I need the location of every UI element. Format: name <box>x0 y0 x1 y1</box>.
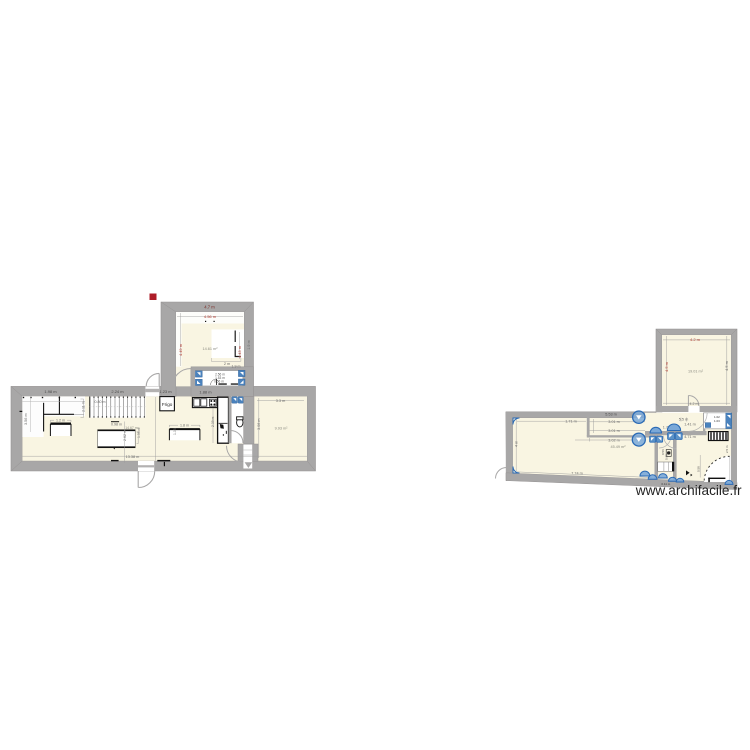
svg-text:4.71 m: 4.71 m <box>684 435 696 439</box>
svg-text:3.06 m: 3.06 m <box>257 418 261 430</box>
svg-text:3.01 m: 3.01 m <box>608 429 620 433</box>
svg-text:45.49 m²: 45.49 m² <box>611 445 627 449</box>
svg-text:1.03: 1.03 <box>714 419 720 423</box>
svg-text:0.98 m: 0.98 m <box>111 422 122 426</box>
svg-text:5.5 m: 5.5 m <box>679 418 689 422</box>
svg-text:19.01 m²: 19.01 m² <box>688 370 704 374</box>
svg-text:2.39 m: 2.39 m <box>211 416 215 427</box>
svg-text:3.01 m: 3.01 m <box>608 420 620 424</box>
svg-text:0.58: 0.58 <box>696 466 700 472</box>
svg-text:0.80 m: 0.80 m <box>95 400 106 404</box>
svg-text:9.93 m²: 9.93 m² <box>275 427 289 431</box>
svg-text:4.43 m: 4.43 m <box>237 345 242 358</box>
svg-text:3.56 m: 3.56 m <box>24 413 28 425</box>
svg-text:14.61 m²: 14.61 m² <box>203 347 219 351</box>
svg-text:4.7 m: 4.7 m <box>204 304 215 309</box>
svg-text:1.9 m: 1.9 m <box>247 340 251 350</box>
svg-text:1.98 m: 1.98 m <box>44 389 57 394</box>
svg-text:4.5 m: 4.5 m <box>724 360 729 371</box>
svg-text:3.3 m: 3.3 m <box>276 399 286 403</box>
svg-text:1.05: 1.05 <box>173 428 177 435</box>
svg-text:2.24 m: 2.24 m <box>111 389 124 394</box>
svg-text:4.2 m: 4.2 m <box>690 402 699 406</box>
svg-text:1.2 m: 1.2 m <box>56 419 65 423</box>
svg-text:1.8 m: 1.8 m <box>180 424 189 428</box>
svg-text:13.38 m: 13.38 m <box>126 455 140 459</box>
svg-text:4.2 m: 4.2 m <box>690 337 701 342</box>
svg-text:www.archifacile.fr: www.archifacile.fr <box>635 483 742 498</box>
svg-text:7.74 m: 7.74 m <box>571 472 583 476</box>
svg-text:1.41 m: 1.41 m <box>684 422 696 426</box>
svg-text:2.62 m: 2.62 m <box>123 430 127 441</box>
svg-text:2 m: 2 m <box>224 362 230 366</box>
svg-text:0.56 m: 0.56 m <box>214 380 224 384</box>
svg-text:4.5 m: 4.5 m <box>664 361 669 372</box>
svg-text:4 m: 4 m <box>515 441 519 447</box>
svg-text:2.11 m: 2.11 m <box>81 401 85 412</box>
svg-text:0.56: 0.56 <box>661 449 665 455</box>
svg-text:2.5 m: 2.5 m <box>725 445 729 453</box>
svg-text:4.49 m: 4.49 m <box>178 343 183 356</box>
svg-text:4.56 m: 4.56 m <box>204 314 217 319</box>
svg-text:Frigo: Frigo <box>162 402 173 407</box>
svg-text:0.98: 0.98 <box>665 454 669 460</box>
svg-text:3.02 m: 3.02 m <box>608 438 620 442</box>
svg-text:1.9 m: 1.9 m <box>232 365 241 369</box>
svg-text:5.53 m: 5.53 m <box>605 413 617 417</box>
svg-text:1.71 m: 1.71 m <box>565 420 577 424</box>
svg-text:1.23 m: 1.23 m <box>159 389 172 394</box>
svg-text:1.59 m: 1.59 m <box>137 427 141 438</box>
svg-text:1.88 m: 1.88 m <box>199 389 212 394</box>
